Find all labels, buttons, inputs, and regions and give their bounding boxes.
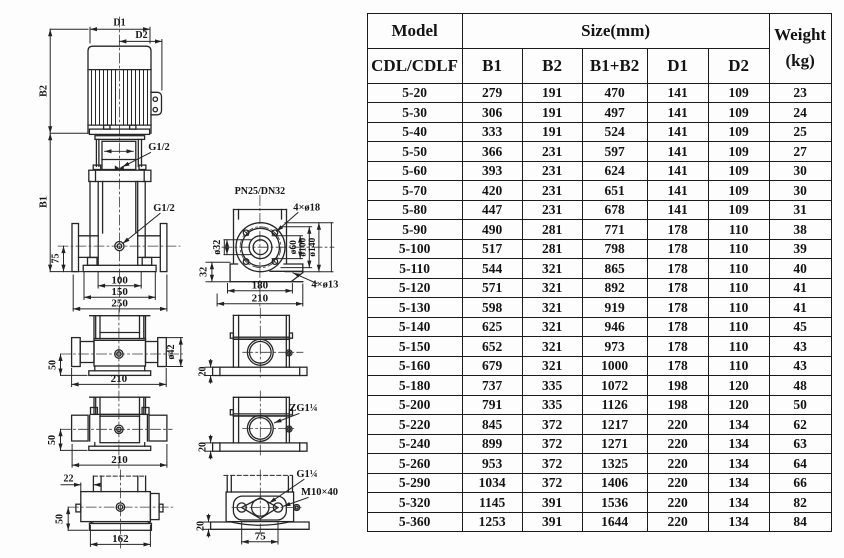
svg-text:G1¼: G1¼: [296, 469, 317, 480]
svg-text:75: 75: [51, 254, 62, 264]
svg-text:4×ø18: 4×ø18: [293, 203, 320, 214]
svg-text:G1/2: G1/2: [153, 203, 175, 214]
svg-text:50: 50: [47, 435, 58, 445]
svg-text:B2: B2: [39, 85, 50, 97]
svg-text:150: 150: [111, 286, 128, 298]
svg-text:4×ø13: 4×ø13: [311, 280, 338, 291]
svg-text:50: 50: [55, 514, 66, 524]
svg-text:D2: D2: [135, 30, 147, 41]
svg-text:180: 180: [252, 280, 269, 292]
svg-text:210: 210: [111, 454, 128, 466]
svg-text:32: 32: [199, 267, 210, 277]
svg-text:20: 20: [197, 367, 208, 377]
svg-text:B1: B1: [39, 196, 50, 208]
svg-text:210: 210: [111, 373, 128, 385]
svg-text:50: 50: [48, 360, 59, 370]
svg-text:250: 250: [111, 298, 128, 310]
svg-text:100: 100: [111, 274, 128, 286]
svg-text:M10×40: M10×40: [301, 487, 338, 498]
svg-text:20: 20: [195, 521, 206, 531]
svg-text:22: 22: [64, 474, 74, 485]
svg-text:ø140: ø140: [308, 237, 318, 256]
svg-text:ø42: ø42: [166, 345, 177, 360]
svg-text:75: 75: [255, 531, 267, 543]
svg-text:210: 210: [252, 293, 269, 305]
svg-text:D1: D1: [113, 18, 125, 29]
svg-text:PN25/DN32: PN25/DN32: [235, 186, 286, 197]
svg-text:ø32: ø32: [212, 240, 223, 255]
svg-text:G1/2: G1/2: [148, 142, 170, 153]
svg-text:20: 20: [197, 442, 208, 452]
svg-text:ZG1¼: ZG1¼: [289, 403, 317, 414]
svg-text:162: 162: [112, 533, 129, 545]
svg-text:ø100: ø100: [298, 237, 308, 256]
